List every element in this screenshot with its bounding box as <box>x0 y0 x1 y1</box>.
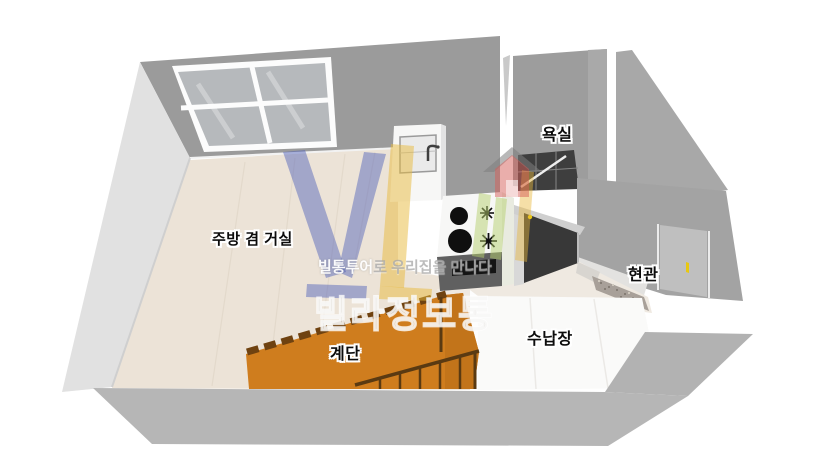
entrance-door-panel <box>660 225 707 297</box>
watermark-tagline: 빌통투어로 우리집을 만나다 <box>318 256 492 277</box>
stove-burner <box>448 229 472 253</box>
floorplan-3d-render: 빌통투어로 우리집을 만나다 빌라정보통 주방 겸 거실 욕실 현관 계단 수납… <box>0 0 840 472</box>
right-wall-upper <box>616 50 728 193</box>
label-storage: 수납장 <box>527 325 573 349</box>
stove-burner <box>450 207 468 225</box>
entrance-door <box>658 224 709 298</box>
watermark-brand-name: 빌통투어 <box>318 259 373 276</box>
entrance-door-handle <box>686 262 689 273</box>
label-entrance: 현관 <box>628 261 658 285</box>
front-wall-face <box>93 388 688 446</box>
label-stairs: 계단 <box>330 340 360 364</box>
label-living-kitchen: 주방 겸 거실 <box>212 228 293 249</box>
label-bathroom: 욕실 <box>542 121 572 145</box>
floorplan-svg <box>0 0 840 472</box>
watermark-tagline-rest: 로 우리집을 만나다 <box>373 259 492 276</box>
watermark-logo-text: 빌라정보통 <box>314 284 494 338</box>
